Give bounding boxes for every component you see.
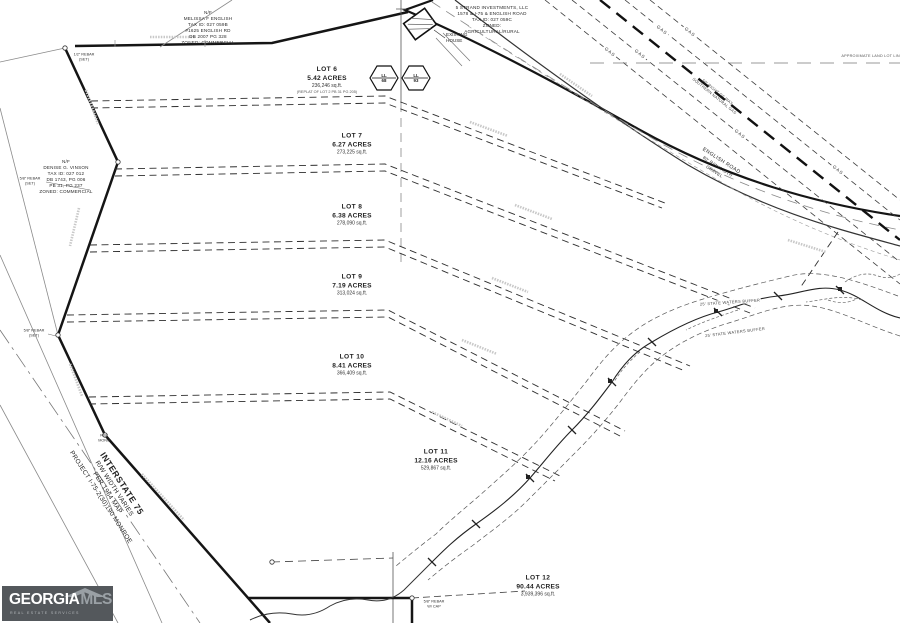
land-lot-text: 93 — [413, 78, 418, 83]
lot-name: LOT 10 — [332, 354, 372, 361]
marker-rw-monument: R/W MONU — [98, 433, 110, 442]
creek-fence-ticks — [428, 286, 844, 566]
southern-natural-gas-rw-line — [600, 0, 900, 240]
creek-fence-posts — [526, 287, 842, 479]
lot-12-label: LOT 12 90.44 ACRES 3,939,396 sq.ft. — [516, 575, 559, 598]
lot-square-footage: 313,024 sq.ft. — [332, 291, 372, 297]
existing-house-label: EXISTING HOUSE — [446, 32, 467, 44]
land-lot-68-label: LL 68 — [381, 73, 386, 83]
lot-square-footage: 3,939,396 sq.ft. — [516, 592, 559, 598]
i75-west-rw-line — [0, 108, 58, 335]
lot-acreage: 90.44 ACRES — [516, 584, 559, 591]
lot-name: LOT 12 — [516, 575, 559, 582]
adjoiner-melissa-english: N/F MELISSA F ENGLISH TAX ID: 027 059B #… — [181, 10, 234, 46]
gas-lines — [545, 0, 900, 284]
property-boundary-west — [58, 48, 270, 623]
lot-acreage: 7.19 ACRES — [332, 283, 372, 290]
creek-bottom-segment — [250, 562, 432, 620]
lot-10-label: LOT 10 8.41 ACRES 366,409 sq.ft. — [332, 354, 372, 377]
lot-acreage: 5.42 ACRES — [297, 75, 357, 82]
lot-square-footage: 529,867 sq.ft. — [414, 466, 457, 472]
lot-line-6-7 — [91, 96, 665, 208]
lot-square-footage: 278,090 sq.ft. — [332, 221, 372, 227]
lot-name: LOT 6 — [297, 66, 357, 73]
lot-square-footage: 236,246 sq.ft. — [297, 83, 357, 89]
corner-monument — [116, 160, 120, 164]
i75-far-lines — [0, 255, 162, 623]
marker-text: MONU — [98, 438, 110, 443]
logo-tagline: REAL ESTATE SERVICES — [10, 611, 80, 615]
lot-name: LOT 8 — [332, 204, 372, 211]
lot-acreage: 6.27 ACRES — [332, 142, 372, 149]
marker-rebar-set-west1: 5/8" REBAR (SET) — [20, 176, 41, 185]
lot-acreage: 8.41 ACRES — [332, 363, 372, 370]
existing-house-text: HOUSE — [446, 38, 467, 44]
owner-strand-investments: 5 STRAND INVESTMENTS, LLC 1578 & I-75 & … — [456, 5, 529, 35]
lot-8-label: LOT 8 6.38 ACRES 278,090 sq.ft. — [332, 204, 372, 227]
lot-11-label: LOT 11 12.16 ACRES 529,867 sq.ft. — [414, 449, 457, 472]
lot-replat-note: (REPLAT OF LOT 2 PB 31 PG 205) — [297, 90, 357, 94]
lot-name: LOT 11 — [414, 449, 457, 456]
lot-square-footage: 273,225 sq.ft. — [332, 150, 372, 156]
lot-line-7-8 — [115, 164, 755, 313]
lot-line-8-9 — [90, 240, 690, 371]
existing-house-symbol — [404, 8, 437, 39]
parcel-text-line: ZONED: COMMERCIAL — [181, 40, 234, 46]
lot-name: LOT 9 — [332, 274, 372, 281]
marker-text: (SET) — [20, 181, 41, 186]
lot-line-to-creek — [800, 232, 838, 288]
lot-6-label: LOT 6 5.42 ACRES 236,246 sq.ft. (REPLAT … — [297, 66, 357, 94]
marker-rebar-cap-south: 5/8" REBAR W/ CAP — [424, 599, 445, 608]
approximate-land-lot-line-label: APPROXIMATE LAND LOT LINE — [840, 54, 900, 58]
lot-7-label: LOT 7 6.27 ACRES 273,225 sq.ft. — [332, 133, 372, 156]
waters-buffer-sw — [428, 305, 900, 580]
logo-wordmark: GEORGIA MLS — [9, 591, 112, 609]
corner-monument — [63, 46, 67, 50]
lot-line-10-11 — [89, 392, 560, 481]
waters-buffer-ne — [396, 274, 898, 566]
lot-name: LOT 7 — [332, 133, 372, 140]
corner-monument — [410, 596, 414, 600]
lot-acreage: 6.38 ACRES — [332, 213, 372, 220]
marker-rebar-set-west2: 5/8" REBAR (SET) — [24, 328, 45, 337]
land-lot-93-label: LL 93 — [413, 73, 418, 83]
lot12-dashed-line — [412, 591, 525, 598]
marker-text: (SET) — [24, 333, 45, 338]
property-boundary-north — [75, 12, 408, 46]
lot-9-label: LOT 9 7.19 ACRES 313,024 sq.ft. — [332, 274, 372, 297]
marker-text: W/ CAP — [424, 604, 445, 609]
corner-monument — [56, 333, 60, 337]
lot-square-footage: 366,409 sq.ft. — [332, 371, 372, 377]
parcel-text-line: ZONED: COMMERCIAL — [39, 189, 92, 195]
georgia-mls-logo: GEORGIA MLS REAL ESTATE SERVICES — [2, 586, 113, 621]
lot-acreage: 12.16 ACRES — [414, 458, 457, 465]
property-boundary-south — [248, 598, 412, 623]
land-lot-text: 68 — [381, 78, 386, 83]
i75-approach-line — [0, 48, 65, 62]
corner-monument — [270, 560, 274, 564]
south-tie-line — [272, 558, 393, 562]
plat-map: N/F MELISSA F ENGLISH TAX ID: 027 059B #… — [0, 0, 900, 623]
adjoiner-denise-vinson: N/F DENISE G. VINSON TAX ID: 027 012 DB … — [39, 159, 92, 195]
creek-centerline — [432, 288, 900, 562]
logo-mls-text: MLS — [80, 591, 112, 609]
house-label-leader — [434, 30, 445, 38]
logo-georgia-text: GEORGIA — [9, 591, 79, 609]
marker-rebar-set-nw: 1/2" REBAR (SET) — [74, 52, 95, 61]
marker-text: (SET) — [74, 57, 95, 62]
road-setback-line — [468, 26, 900, 260]
